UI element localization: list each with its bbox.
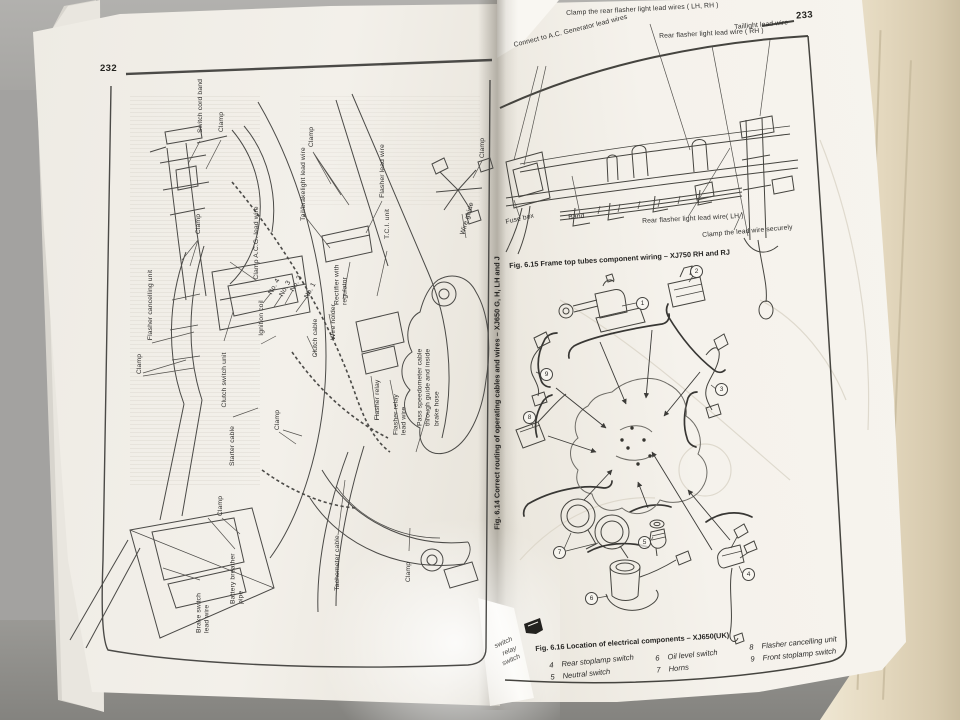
legend-column-1: 4 Rear stoplamp switch 5 Neutral switch xyxy=(546,652,635,683)
callout-7: 7 xyxy=(553,546,566,559)
legend-column-cutoff: switch relay switch xyxy=(472,635,522,678)
label-clamp: Clamp xyxy=(308,127,316,147)
label-no-1: No. 1 xyxy=(303,282,318,301)
label-clamp: Clamp xyxy=(274,410,282,430)
label-tachometer-cable: Tachometer cable xyxy=(334,535,342,591)
label-clamp: Clamp xyxy=(195,214,203,234)
label-wire-holder: Wire holder xyxy=(330,304,338,340)
label-clamp: Clamp xyxy=(217,496,225,516)
callout-6: 6 xyxy=(585,592,598,605)
callout-5: 5 xyxy=(638,536,651,549)
fig-614-caption: Fig. 6.14 Correct routing of operating c… xyxy=(493,256,502,530)
label-clutch-cable: Clutch cable xyxy=(312,319,320,358)
text-layer: 232 233 Switch cord band Clamp Clamp Cla… xyxy=(0,0,960,720)
label-connect-acg-lead-wires: Connect to A.C. Generator lead wires xyxy=(513,14,628,50)
callout-4: 4 xyxy=(742,568,755,581)
label-rear-flasher-rh: Rear flasher light lead wire ( RH ) xyxy=(659,28,764,42)
label-tail-brakelight-lead-wire: Tail/brakelight lead wire xyxy=(300,147,308,221)
label-pass-speedometer-cable: Pass speedometer cable through guide and… xyxy=(417,330,442,426)
callout-9: 9 xyxy=(540,368,553,381)
legend-column-3: 8 Flasher cancelling unit 9 Front stopla… xyxy=(746,633,838,665)
callout-2: 2 xyxy=(690,265,703,278)
label-starter-cable: Starter cable xyxy=(229,426,237,466)
label-rectifier-with-regulator: Rectifier with regulator xyxy=(334,257,351,305)
label-ignition-coil: Ignition coil xyxy=(258,300,266,336)
label-flasher-cancelling-unit: Flasher cancelling unit xyxy=(147,270,155,340)
right-page-number: 233 xyxy=(796,9,814,21)
callout-1: 1 xyxy=(636,297,649,310)
label-flasher-relay-lead-wire: Flasher relay lead wire xyxy=(393,383,410,435)
label-brake-switch-lead-wire: Brake switch lead wire xyxy=(196,581,213,633)
label-clamp: Clamp xyxy=(405,562,413,582)
label-tci-unit: T.C.I. unit xyxy=(384,209,392,239)
label-clamp: Clamp xyxy=(218,112,226,132)
label-switch-cord-band: Switch cord band xyxy=(197,79,205,133)
label-clutch-switch-unit: Clutch switch unit xyxy=(221,352,229,407)
label-no-2: No. 2 xyxy=(289,275,304,294)
label-clamp-rear-flasher-wires: Clamp the rear flasher light lead wires … xyxy=(566,2,719,18)
label-battery-breather-pipe: Battery breather pipe xyxy=(230,546,247,604)
label-band: Band xyxy=(568,213,585,222)
callout-3: 3 xyxy=(715,383,728,396)
photo-open-manual: 232 233 Switch cord band Clamp Clamp Cla… xyxy=(0,0,960,720)
label-flasher-relay: Flasher relay xyxy=(374,380,382,421)
callout-8: 8 xyxy=(523,411,536,424)
label-clamp: Clamp xyxy=(136,354,144,374)
label-flasher-lead-wire: Flasher lead wire xyxy=(379,144,387,198)
label-rear-flasher-lh: Rear flasher light lead wire( LH ) xyxy=(642,213,744,227)
label-clamp-acg-lead-wire: Clamp A.C.G. lead wire xyxy=(253,206,261,279)
label-clamp: Clamp xyxy=(479,138,487,158)
label-clamp-lead-wire-securely: Clamp the lead wire securely xyxy=(702,224,793,240)
label-wire-guide: Wire guide xyxy=(459,202,476,237)
label-fuse-box: Fuse box xyxy=(505,212,535,227)
left-page-number: 232 xyxy=(100,63,117,74)
legend-column-2: 6 Oil level switch 7 Horns xyxy=(652,647,719,676)
